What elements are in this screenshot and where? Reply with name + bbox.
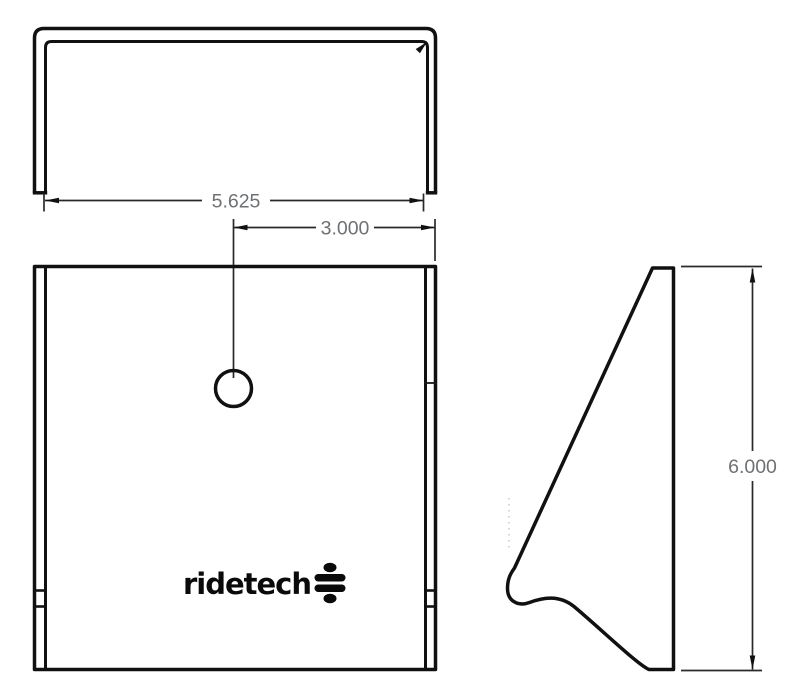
corner-callout-arrow-icon: [416, 42, 427, 53]
arrow-left-icon: [234, 225, 248, 231]
front-view-outer-rect: [35, 267, 436, 670]
drawing-canvas: 5.625 3.000 ridetech: [0, 0, 800, 698]
top-view: [33, 29, 437, 194]
front-view: ridetech: [33, 267, 437, 670]
technical-drawing-svg: 5.625 3.000 ridetech: [0, 0, 800, 698]
top-view-outer-contour: [35, 29, 436, 194]
dimension-overall-height: 6.000: [681, 267, 777, 671]
ridetech-shock-mark-icon: [315, 563, 346, 604]
ridetech-logo-text: ridetech: [183, 567, 311, 601]
arrow-left-icon: [45, 198, 59, 204]
arrow-right-icon: [410, 198, 424, 204]
arrow-up-icon: [750, 269, 756, 283]
side-view: [508, 268, 674, 670]
dim-label-overall-height: 6.000: [728, 456, 777, 478]
side-view-profile: [508, 268, 674, 670]
top-view-inner-contour: [46, 42, 428, 194]
dim-label-hole-offset: 3.000: [321, 218, 370, 240]
dimension-channel-width: 5.625: [44, 191, 424, 213]
dimension-hole-offset: 3.000: [234, 218, 436, 379]
arrow-right-icon: [421, 225, 435, 231]
arrow-down-icon: [750, 656, 756, 670]
dim-label-channel-width: 5.625: [212, 191, 261, 213]
